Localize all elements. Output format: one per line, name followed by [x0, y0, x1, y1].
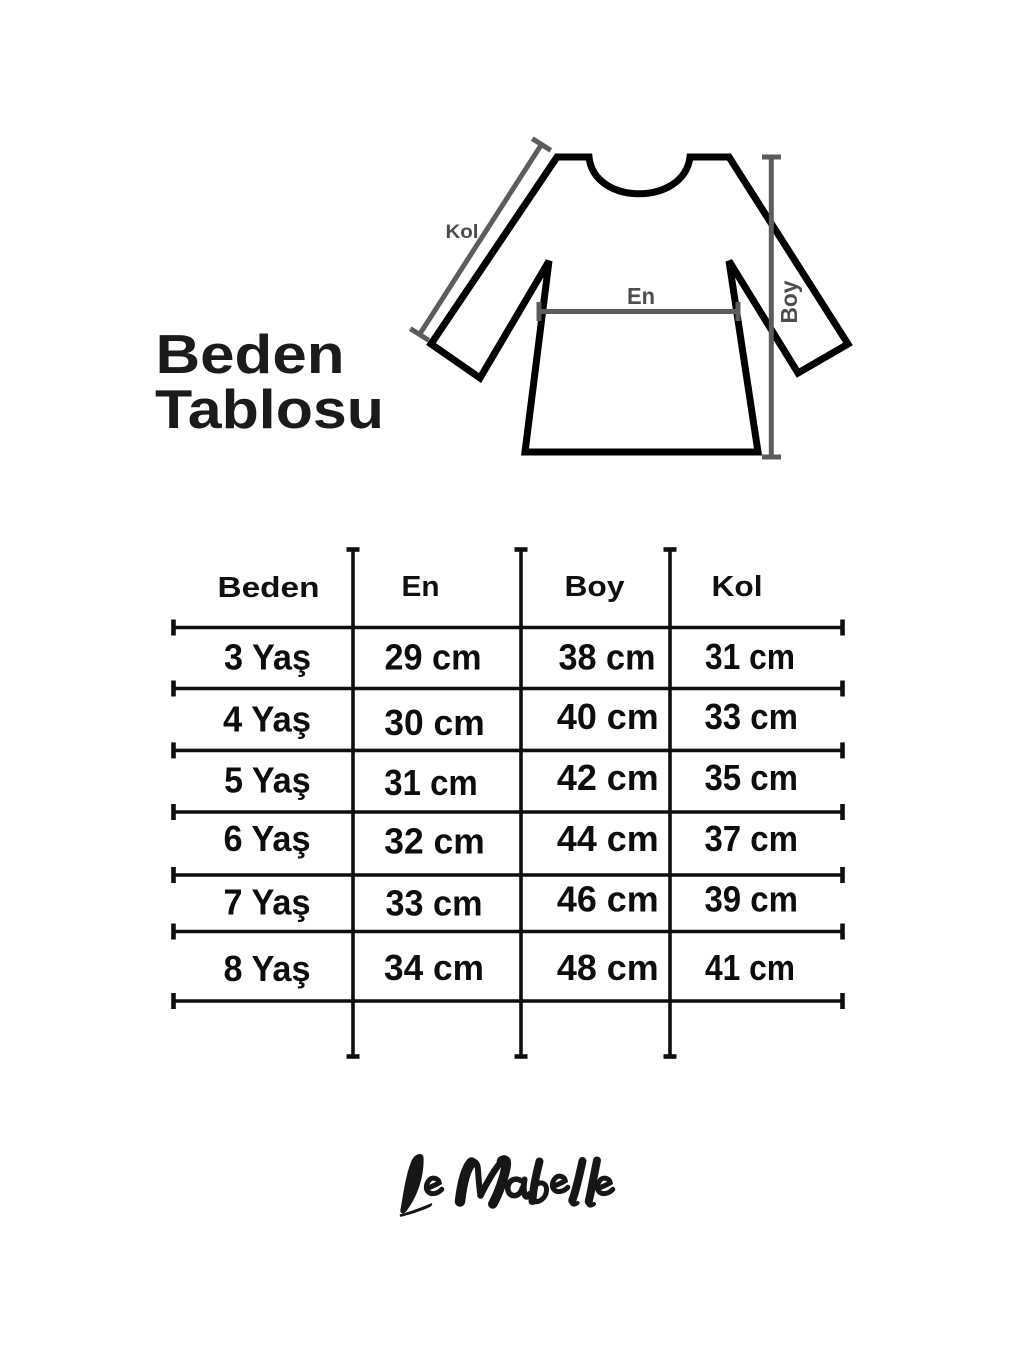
- svg-text:48 cm: 48 cm: [557, 947, 659, 988]
- svg-text:Beden: Beden: [156, 323, 345, 385]
- svg-text:42 cm: 42 cm: [557, 757, 659, 798]
- svg-text:33 cm: 33 cm: [704, 696, 798, 737]
- svg-text:Tablosu: Tablosu: [155, 378, 384, 440]
- svg-text:37 cm: 37 cm: [704, 818, 798, 859]
- svg-text:40 cm: 40 cm: [557, 696, 659, 737]
- svg-text:44 cm: 44 cm: [557, 818, 659, 859]
- svg-text:En: En: [402, 571, 440, 603]
- svg-text:4 Yaş: 4 Yaş: [223, 699, 311, 740]
- svg-text:3 Yaş: 3 Yaş: [224, 637, 311, 678]
- svg-text:39 cm: 39 cm: [704, 879, 798, 920]
- svg-text:38 cm: 38 cm: [559, 637, 656, 678]
- svg-text:7 Yaş: 7 Yaş: [224, 881, 311, 922]
- svg-text:Boy: Boy: [776, 280, 802, 323]
- svg-text:31 cm: 31 cm: [705, 636, 795, 677]
- svg-text:41 cm: 41 cm: [705, 947, 795, 988]
- svg-text:29 cm: 29 cm: [385, 637, 482, 678]
- svg-text:5 Yaş: 5 Yaş: [224, 760, 311, 801]
- svg-text:8 Yaş: 8 Yaş: [224, 948, 311, 989]
- svg-text:35 cm: 35 cm: [704, 757, 798, 798]
- svg-text:46 cm: 46 cm: [557, 879, 659, 920]
- svg-text:30 cm: 30 cm: [384, 702, 484, 743]
- svg-text:Kol: Kol: [712, 571, 763, 603]
- svg-text:32 cm: 32 cm: [384, 821, 484, 862]
- svg-text:31 cm: 31 cm: [384, 762, 478, 803]
- svg-text:Boy: Boy: [565, 571, 625, 603]
- svg-text:Kol: Kol: [446, 222, 479, 243]
- svg-text:En: En: [627, 283, 655, 309]
- svg-text:33 cm: 33 cm: [386, 883, 483, 924]
- svg-text:6 Yaş: 6 Yaş: [224, 818, 311, 859]
- svg-text:34 cm: 34 cm: [384, 947, 484, 988]
- svg-text:Beden: Beden: [218, 572, 320, 604]
